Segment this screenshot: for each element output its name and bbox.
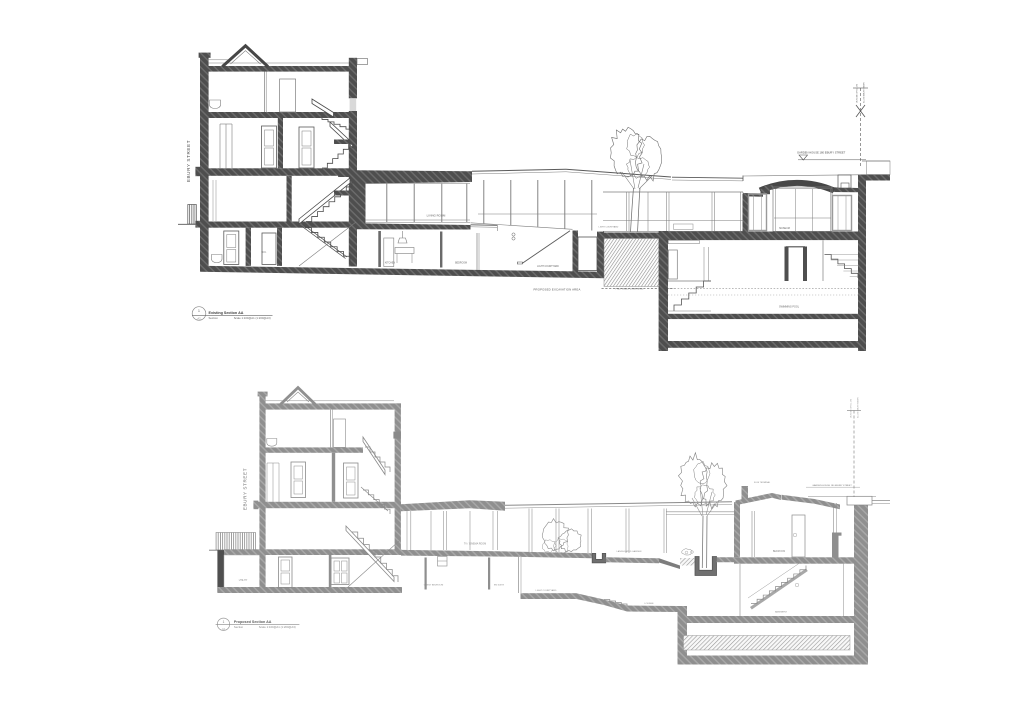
svg-text:LIGHT COURTYARD: LIGHT COURTYARD	[537, 265, 559, 268]
svg-text:FLUE TERMINAL: FLUE TERMINAL	[754, 481, 771, 484]
svg-text:GARDEN HOUSE 180 EBURY STR: GARDEN HOUSE 180 EBURY STREET	[797, 151, 846, 155]
svg-text:Scale 1:100@A1 (1:200@A3): Scale 1:100@A1 (1:200@A3)	[234, 316, 271, 320]
svg-text:Existing Section AA: Existing Section AA	[209, 311, 244, 315]
svg-text:PROPOSED EXCAVATION AREA: PROPOSED EXCAVATION AREA	[533, 288, 580, 292]
svg-text:No.180 EBURY MEWS: No.180 EBURY MEWS	[864, 82, 866, 103]
svg-text:TV / CINEMA ROOM: TV / CINEMA ROOM	[464, 543, 486, 546]
svg-text:1: 1	[223, 620, 225, 624]
svg-text:GUEST BEDROOM: GUEST BEDROOM	[424, 585, 444, 587]
svg-text:A2: A2	[197, 316, 201, 320]
svg-text:KITCHEN: KITCHEN	[385, 263, 395, 265]
svg-text:UTILITY: UTILITY	[239, 580, 248, 582]
svg-text:No.180 EBURY MEWS: No.180 EBURY MEWS	[858, 397, 860, 418]
svg-text:BEDROOM: BEDROOM	[455, 263, 467, 265]
svg-text:EN SUITE: EN SUITE	[494, 585, 505, 587]
svg-text:LIGHT COURTYARD: LIGHT COURTYARD	[536, 589, 557, 592]
svg-text:Scale 1:100@A1 (1:200@A3): Scale 1:100@A1 (1:200@A3)	[259, 625, 296, 629]
svg-text:EBURY STREET: EBURY STREET	[186, 140, 191, 182]
svg-text:1: 1	[198, 309, 200, 313]
svg-text:Section: Section	[234, 625, 244, 629]
svg-text:SWIMMING POOL: SWIMMING POOL	[779, 306, 800, 309]
svg-text:LOUNGE: LOUNGE	[644, 603, 654, 605]
svg-text:LIGHT COURTYARD: LIGHT COURTYARD	[599, 225, 619, 228]
svg-text:GARDEN HOUSE 180 EBURY STREET: GARDEN HOUSE 180 EBURY STREET	[812, 484, 852, 487]
svg-text:LIVING ROOM: LIVING ROOM	[427, 214, 446, 218]
svg-text:LANDSCAPED GARDEN: LANDSCAPED GARDEN	[617, 550, 642, 553]
svg-text:Section: Section	[209, 316, 219, 320]
svg-text:OUTLINE OF No.182: OUTLINE OF No.182	[857, 83, 859, 103]
svg-text:PROPOSED FLOOR LEVEL: PROPOSED FLOOR LEVEL	[616, 288, 645, 290]
svg-text:EBURY STREET: EBURY STREET	[243, 468, 248, 510]
svg-text:Proposed Section AA: Proposed Section AA	[234, 620, 272, 624]
svg-text:MUSEUM: MUSEUM	[779, 227, 790, 230]
svg-text:BASEMENT: BASEMENT	[775, 610, 788, 613]
svg-text:BEDROOM: BEDROOM	[773, 550, 785, 553]
svg-text:OUTLINE OF No.182: OUTLINE OF No.182	[851, 398, 853, 418]
